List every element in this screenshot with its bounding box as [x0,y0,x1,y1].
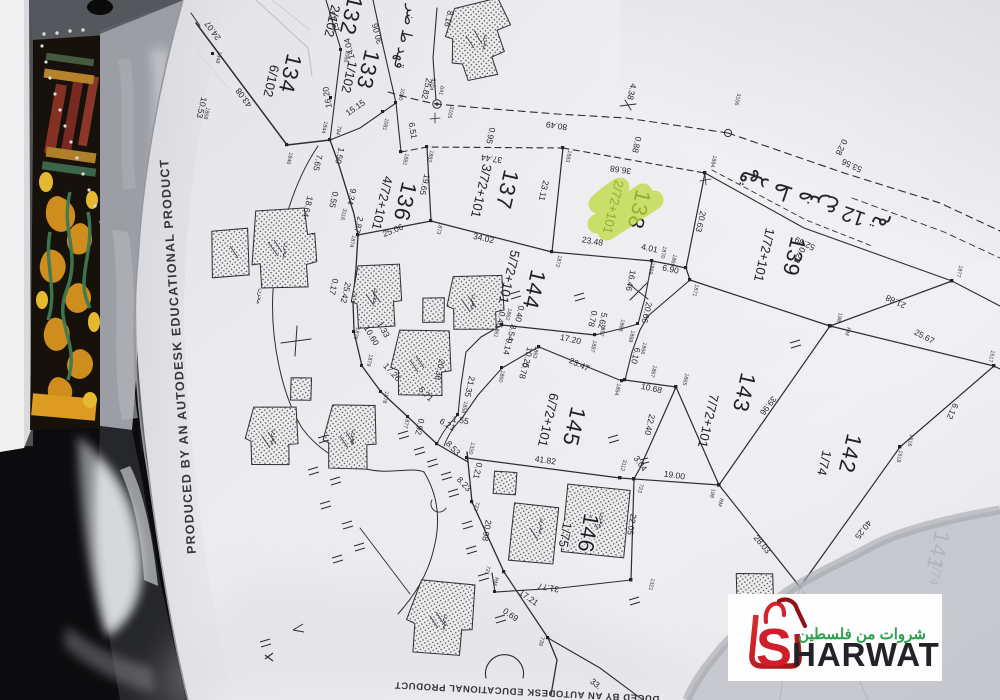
svg-text:HARWAT: HARWAT [792,636,940,673]
svg-text:S: S [756,618,792,678]
